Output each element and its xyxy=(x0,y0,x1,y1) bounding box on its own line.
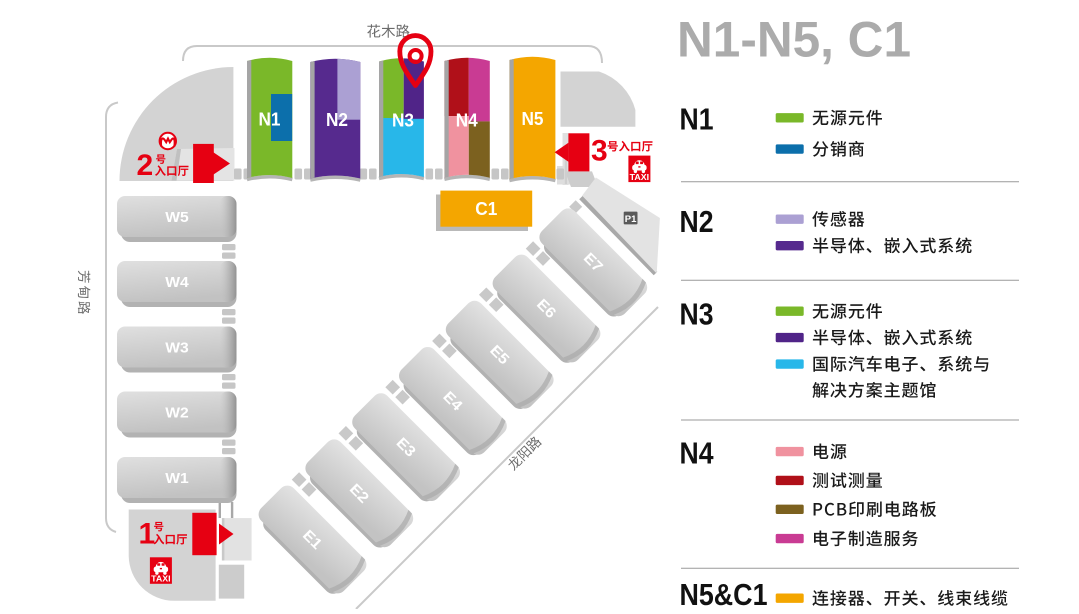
svg-text:P1: P1 xyxy=(625,214,637,225)
svg-text:N5: N5 xyxy=(522,109,544,129)
svg-text:N2: N2 xyxy=(680,204,714,239)
svg-text:W3: W3 xyxy=(165,340,189,357)
svg-text:C1: C1 xyxy=(475,199,497,219)
svg-text:N4: N4 xyxy=(680,435,715,470)
svg-text:1: 1 xyxy=(139,518,156,551)
svg-text:W4: W4 xyxy=(165,274,189,291)
svg-text:N1: N1 xyxy=(680,102,714,137)
svg-text:3: 3 xyxy=(591,135,608,168)
svg-text:N1-N5, C1: N1-N5, C1 xyxy=(677,12,911,68)
svg-text:N3: N3 xyxy=(680,297,714,332)
svg-text:W1: W1 xyxy=(165,470,189,487)
svg-text:N3: N3 xyxy=(392,111,414,131)
svg-text:TAXI: TAXI xyxy=(630,172,650,182)
svg-text:2: 2 xyxy=(137,149,154,182)
svg-text:N5&C1: N5&C1 xyxy=(680,577,768,609)
svg-text:N2: N2 xyxy=(326,110,348,130)
svg-text:W5: W5 xyxy=(165,209,189,226)
svg-text:N1: N1 xyxy=(259,110,281,130)
svg-text:TAXI: TAXI xyxy=(151,574,171,584)
svg-text:N4: N4 xyxy=(456,111,478,131)
svg-text:W2: W2 xyxy=(165,405,189,422)
